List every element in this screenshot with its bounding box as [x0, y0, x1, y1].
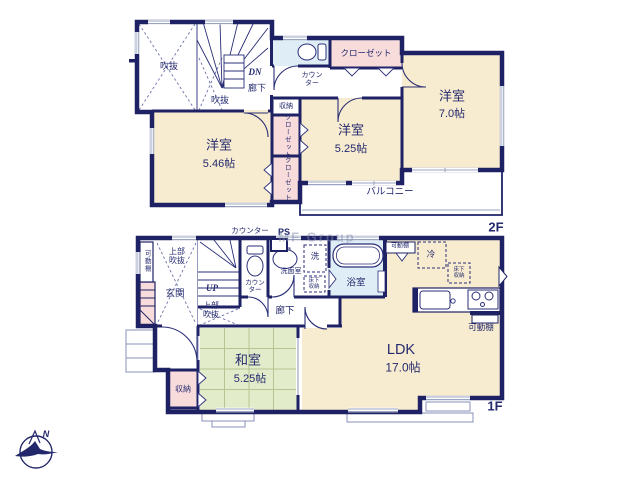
rooms-1f: [138, 238, 502, 412]
counter-toilet-label: カウン ター: [245, 280, 265, 295]
shelf-bottom-label: 可動棚: [468, 323, 494, 333]
closet-top-label: クローゼット: [340, 49, 391, 59]
room-west-7-size: 7.0帖: [439, 108, 465, 120]
upper-void-2-label: 上部 吹抜: [203, 302, 219, 320]
ldk-name: LDK: [387, 342, 415, 358]
terrace: [347, 413, 473, 422]
washroom-label: 洗面室: [281, 268, 302, 276]
room-west-7-name: 洋室: [439, 90, 465, 105]
watermark: MF Group: [278, 230, 355, 245]
north-label: N: [43, 429, 50, 439]
floor-label-2f: 2F: [488, 221, 503, 236]
storage-1f-label: 収納: [175, 386, 191, 395]
faucet-icon: [451, 299, 455, 303]
room-west-525-size: 5.25帖: [335, 143, 367, 155]
shoe-cabinet: [140, 282, 155, 325]
fridge-label: 冷: [427, 250, 436, 260]
shelf-left-label: 可動棚: [143, 250, 150, 273]
underfloor-ldk-label: 床下 収納: [453, 267, 464, 279]
fukinuke-lower-label: 吹抜: [211, 95, 229, 105]
counter-2f-label: カウン ター: [302, 72, 323, 88]
entrance-steps: [126, 330, 155, 372]
counter-above-label: カウンター: [231, 227, 269, 235]
stove-icon: [468, 290, 498, 309]
ldk-size: 17.0帖: [385, 361, 420, 374]
compass-icon: [15, 431, 58, 468]
storage-2f-label: 収納: [279, 103, 293, 111]
washitsu-size: 5.25帖: [234, 373, 266, 385]
closet-v2-label: クローゼット: [283, 157, 290, 202]
floorplan-page: 吹抜吹抜DN廊下カウン タークローゼット収納クローゼットクローゼット洋室7.0帖…: [0, 0, 640, 480]
wall-handle: [129, 59, 137, 63]
underfloor-washroom-label: 床下 収納: [308, 278, 319, 290]
room-west-546-name: 洋室: [206, 139, 232, 154]
toilet-icon-1f: [247, 246, 263, 276]
upper-void-1-label: 上部 吹抜: [169, 248, 185, 266]
hallway-2f-label: 廊下: [248, 83, 266, 93]
hallway-1f-label: 廊下: [275, 307, 294, 318]
balcony-label: バルコニー: [366, 188, 413, 199]
room-west-525-name: 洋室: [338, 124, 364, 139]
fukinuke-upper-label: 吹抜: [160, 61, 178, 71]
shelf-top-label: 可動棚: [391, 244, 409, 251]
bathroom-label: 浴室: [346, 279, 365, 290]
floor-label-1f: 1F: [487, 400, 502, 415]
kitchen-sink-icon: [420, 291, 450, 309]
toilet-icon-2f: [298, 44, 326, 60]
room-west-546-size: 5.46帖: [203, 158, 235, 170]
entrance-label: 玄関: [165, 290, 184, 301]
stairs-up-label: UP: [206, 283, 218, 293]
washer-label: 洗: [311, 252, 320, 262]
room-west-525: [300, 98, 402, 183]
washitsu-name: 和室: [235, 354, 261, 369]
stairs-down-label: DN: [249, 67, 262, 77]
notch-step: [426, 402, 470, 411]
closet-v1-label: クローゼット: [283, 114, 290, 159]
